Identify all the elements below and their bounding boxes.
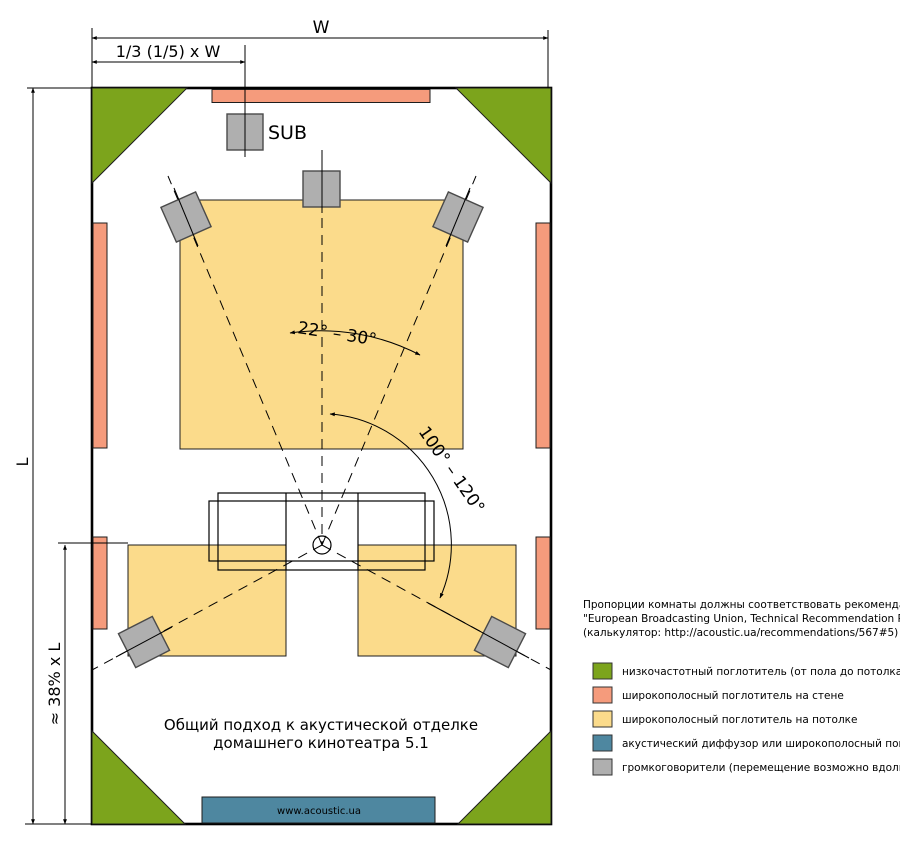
dimension-label-w: W [313, 18, 330, 38]
legend-label-bass-absorber: низкочастотный поглотитель (от пола до п… [622, 666, 900, 678]
caption-line2: домашнего кинотеатра 5.1 [213, 734, 429, 752]
wall-absorber-left-lower [93, 537, 107, 629]
legend-label-diffuser: акустический диффузор или широкополосный… [622, 738, 900, 750]
dimension-label-l-fraction: ≈ 38% x L [45, 643, 64, 726]
legend-swatch-diffuser [593, 735, 612, 751]
legend: низкочастотный поглотитель (от пола до п… [593, 663, 900, 775]
dimension-label-l: L [13, 457, 32, 466]
wall-absorber-right-lower [536, 537, 550, 629]
legend-swatch-wall-absorber [593, 687, 612, 703]
legend-swatch-ceiling-absorber [593, 711, 612, 727]
legend-label-loudspeakers: громкоговорители (перемещение возможно в… [622, 762, 900, 774]
legend-swatch-loudspeakers [593, 759, 612, 775]
caption-line1: Общий подход к акустической отделке [164, 716, 478, 734]
wall-absorber-left-upper [93, 223, 107, 448]
note-line3: (калькулятор: http://acoustic.ua/recomme… [583, 627, 898, 639]
acoustic-treatment-diagram: www.acoustic.ua 22° – 30° 100° – 120° W … [0, 0, 900, 851]
sub-label: SUB [268, 122, 307, 144]
wall-absorber-right-upper [536, 223, 550, 448]
diffuser-text: www.acoustic.ua [277, 806, 361, 817]
dimension-label-w-fraction: 1/3 (1/5) x W [116, 42, 221, 61]
legend-label-ceiling-absorber: широкополосный поглотитель на потолке [622, 714, 857, 726]
legend-swatch-bass-absorber [593, 663, 612, 679]
legend-label-wall-absorber: широкополосный поглотитель на стене [622, 690, 844, 702]
note-line1: Пропорции комнаты должны соответствовать… [583, 599, 900, 611]
note-line2: "European Broadcasting Union, Technical … [583, 613, 900, 625]
